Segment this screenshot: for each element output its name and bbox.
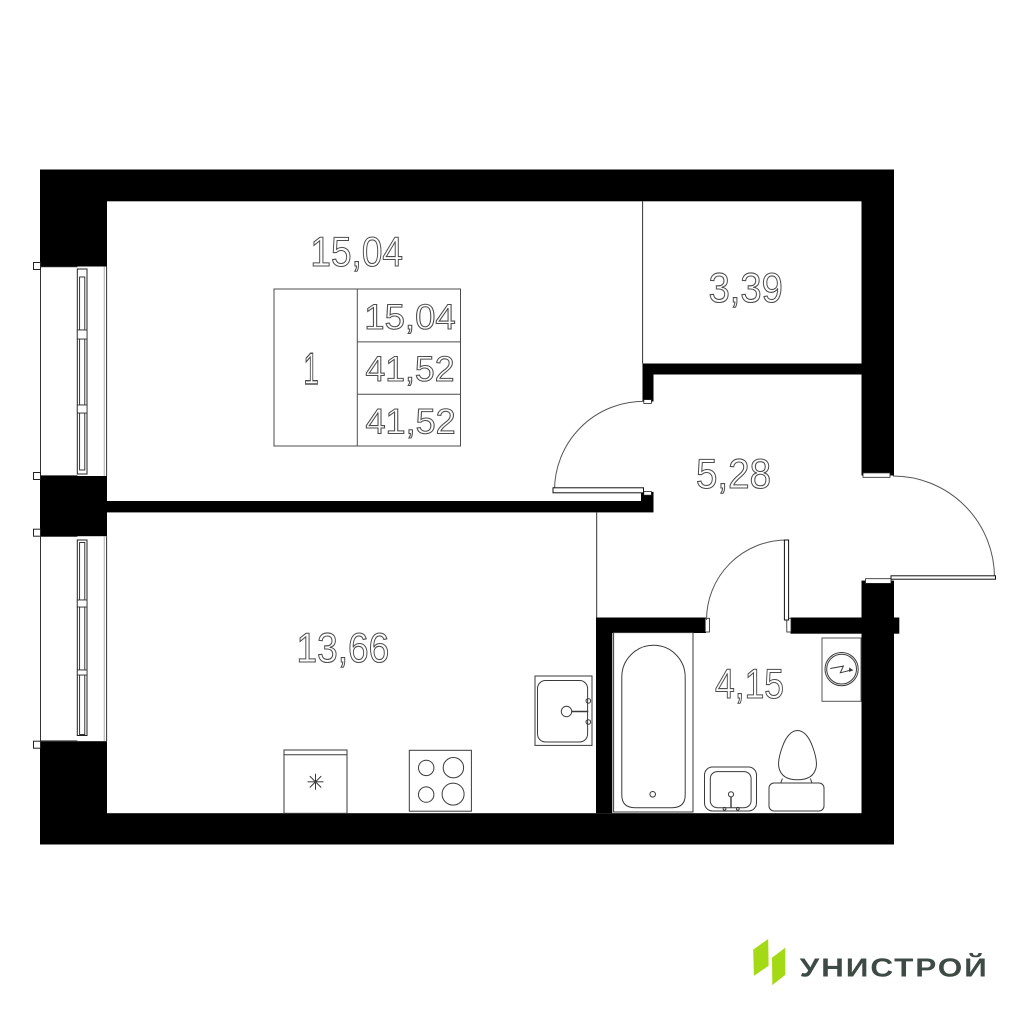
svg-text:5,28: 5,28: [696, 450, 771, 497]
svg-text:41,52: 41,52: [366, 350, 455, 389]
svg-text:4,15: 4,15: [715, 660, 784, 707]
svg-text:15,04: 15,04: [364, 298, 455, 337]
svg-text:13,66: 13,66: [297, 624, 390, 671]
svg-text:3,39: 3,39: [709, 264, 783, 311]
svg-text:41,52: 41,52: [366, 403, 456, 442]
svg-text:15,04: 15,04: [310, 228, 403, 275]
svg-text:1: 1: [303, 343, 318, 393]
svg-text:УНИСТРОЙ: УНИСТРОЙ: [800, 953, 989, 983]
